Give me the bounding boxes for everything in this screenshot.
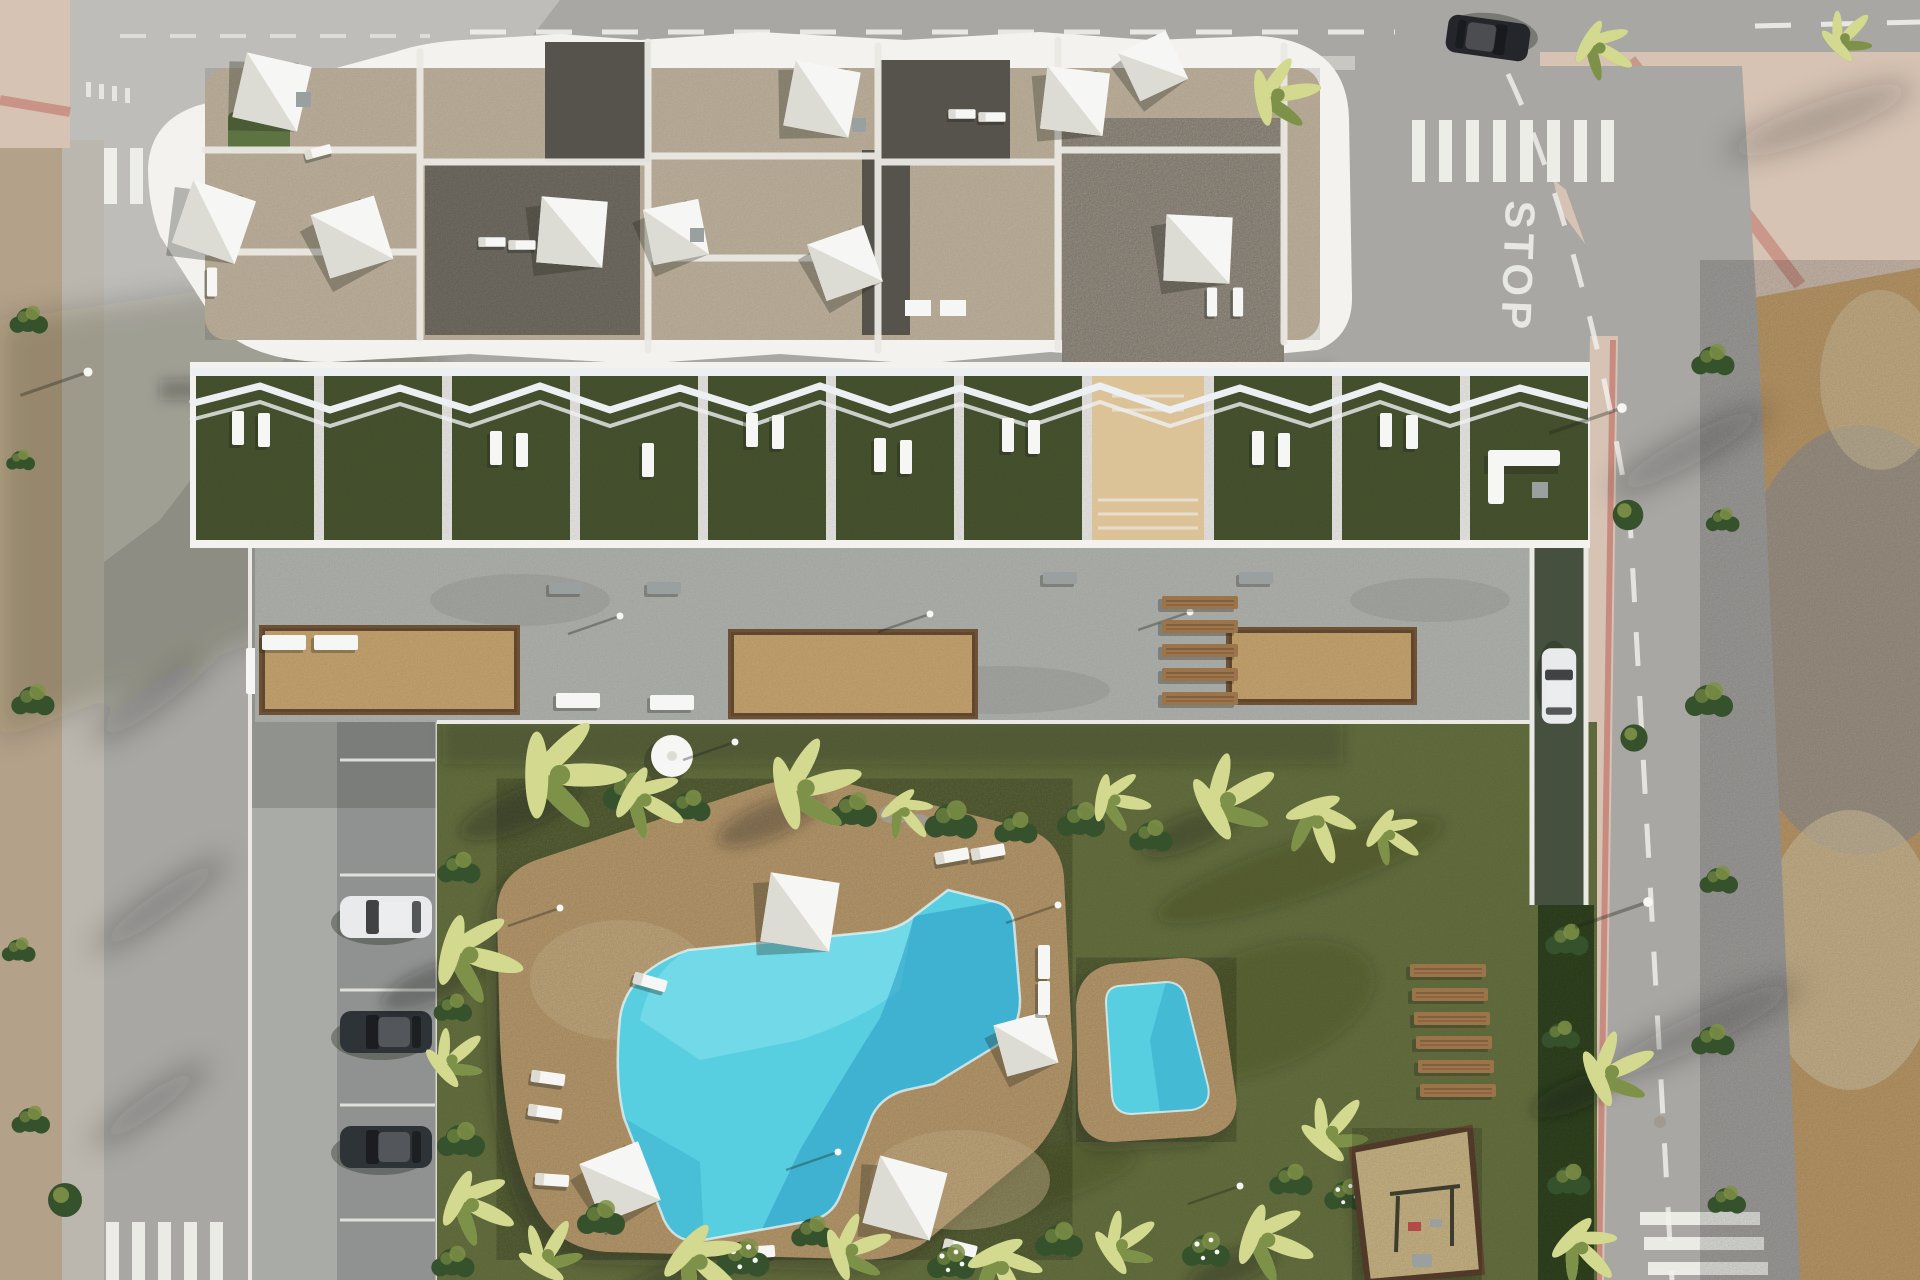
bench [1236,572,1273,587]
corner-paving [0,0,70,148]
parked-car-dark [331,1126,432,1175]
stop-road-marking: STOP [1492,200,1544,335]
skylight [940,300,966,316]
grass-terraces [196,372,1588,540]
street-tree [1613,500,1644,531]
swing-seat-red [1408,1222,1421,1231]
garage-ramp [1532,548,1586,905]
parked-car-white [331,896,432,945]
parked-car-dark [331,1011,432,1060]
render-canvas: STOP [0,0,1920,1280]
bench [311,635,358,653]
playground-bin [1412,1254,1432,1267]
roof-table [852,118,866,132]
bench [647,695,694,713]
terrace-table [1532,482,1548,498]
roof-table [690,228,704,242]
bench [259,635,306,653]
car-on-ramp [1536,641,1576,724]
ramp-surface [1532,548,1586,905]
garden-terrace-row [190,362,1590,548]
bench [553,693,600,711]
manhole-cover [1654,1116,1666,1128]
skylight [905,300,931,316]
dirt-texture [1700,260,1920,1280]
playground [1344,1128,1482,1280]
plaza [255,548,1532,722]
swing-seat [1430,1219,1442,1227]
roof-table [296,92,311,107]
dark-roof [545,42,650,162]
street-tree [48,1183,82,1217]
bench [546,582,583,597]
bench [644,582,681,597]
street-tree [1620,724,1647,751]
aerial-render: STOP [0,0,1920,1280]
sand-planters [262,628,1414,716]
apartment-building [148,29,1352,400]
bench [1040,572,1077,587]
